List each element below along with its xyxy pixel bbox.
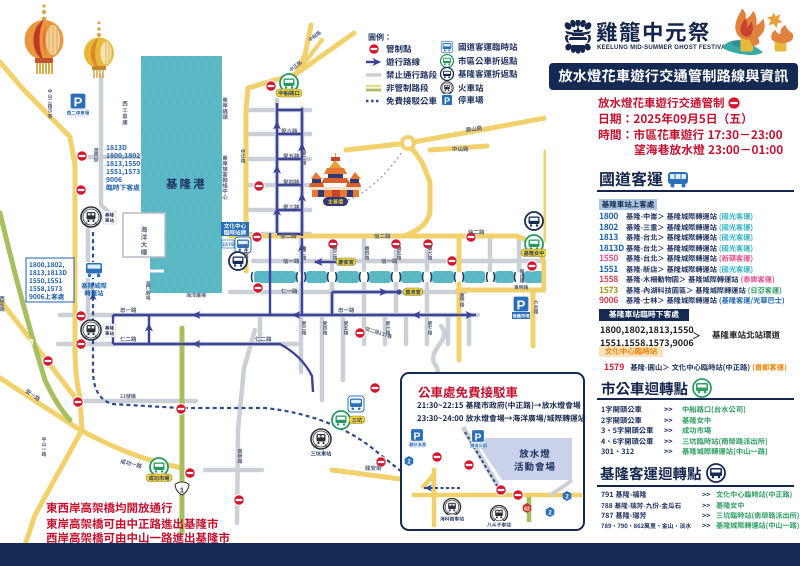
svg-text:義五路: 義五路 <box>396 245 403 261</box>
svg-text:西三倉庫: 西三倉庫 <box>121 100 129 126</box>
svg-text:東西岸高架橋均開放通行: 東西岸高架橋均開放通行 <box>46 500 173 516</box>
svg-text:港西街: 港西街 <box>93 147 100 163</box>
svg-text:東岸碼頭: 東岸碼頭 <box>221 97 229 120</box>
svg-text:東明路: 東明路 <box>514 284 529 291</box>
svg-text:仁二路: 仁二路 <box>120 335 137 343</box>
svg-text:奠濟宮: 奠濟宮 <box>405 289 421 296</box>
svg-text:中山路: 中山路 <box>452 145 469 153</box>
svg-text:放水燈: 放水燈 <box>519 446 551 460</box>
svg-text:臨時下客處: 臨時下客處 <box>106 182 140 192</box>
svg-text:東明路: 東明路 <box>459 292 466 308</box>
svg-text:62: 62 <box>524 507 530 513</box>
svg-text:東岸旅客聯絡中心: 東岸旅客聯絡中心 <box>221 155 229 200</box>
svg-text:信一路: 信一路 <box>283 257 300 265</box>
svg-text:停車場: 停車場 <box>458 94 484 106</box>
svg-text:義六路: 義六路 <box>427 245 434 261</box>
svg-text:義四路: 義四路 <box>364 245 371 261</box>
svg-text:海洋大樓: 海洋大樓 <box>139 226 149 256</box>
svg-text:信義市場: 信義市場 <box>512 314 530 320</box>
svg-text:西定路: 西定路 <box>0 295 6 312</box>
svg-text:南榮路: 南榮路 <box>237 448 244 464</box>
svg-text:西二停車場: 西二停車場 <box>67 111 90 117</box>
svg-text:義二路: 義二路 <box>301 245 308 261</box>
svg-text:基隆客運折返點: 基隆客運折返點 <box>458 68 518 80</box>
svg-text:免費接駁公車: 免費接駁公車 <box>386 95 438 107</box>
svg-text:管制點: 管制點 <box>386 43 412 55</box>
svg-text:臨時站牌: 臨時站牌 <box>224 229 247 237</box>
svg-text:市區公車折返點: 市區公車折返點 <box>458 55 518 67</box>
svg-text:中正路: 中正路 <box>240 148 247 164</box>
svg-text:愛五路: 愛五路 <box>343 320 350 336</box>
svg-text:海科館車站: 海科館車站 <box>440 515 464 522</box>
svg-text:仁一路: 仁一路 <box>281 287 298 295</box>
svg-text:中船路口: 中船路口 <box>278 89 300 97</box>
svg-text:八斗子車站: 八斗子車站 <box>487 521 511 528</box>
svg-text:仁二路: 仁二路 <box>255 335 272 343</box>
svg-text:三坑: 三坑 <box>352 417 363 424</box>
svg-text:碧砂漁港: 碧砂漁港 <box>409 442 427 448</box>
svg-text:國道客運臨時站: 國道客運臨時站 <box>458 41 518 53</box>
svg-text:愛六路: 愛六路 <box>281 127 298 135</box>
svg-text:成功市場: 成功市場 <box>149 475 171 482</box>
svg-text:六合路: 六合路 <box>533 299 540 315</box>
svg-text:主普壇: 主普壇 <box>328 199 344 206</box>
svg-text:基隆女中: 基隆女中 <box>524 250 545 257</box>
svg-text:慶安宮: 慶安宮 <box>338 259 354 266</box>
svg-text:信二路: 信二路 <box>374 232 391 240</box>
svg-text:忠一路: 忠一路 <box>120 306 137 314</box>
svg-text:9006上客處: 9006上客處 <box>29 291 65 301</box>
svg-text:忠一路: 忠一路 <box>338 306 355 314</box>
svg-text:潮境公園: 潮境公園 <box>470 443 487 449</box>
svg-text:基隆港: 基隆港 <box>166 176 207 192</box>
svg-text:非管制路段: 非管制路段 <box>386 82 429 94</box>
svg-text:信二路: 信二路 <box>468 228 485 236</box>
svg-text:遊行路線: 遊行路線 <box>386 56 421 68</box>
svg-text:龍安街: 龍安街 <box>365 464 382 472</box>
svg-text:車站: 車站 <box>105 218 115 224</box>
svg-text:愛三路: 愛三路 <box>283 203 300 211</box>
svg-text:三坑車站: 三坑車站 <box>311 451 333 458</box>
svg-text:中山二路35巷: 中山二路35巷 <box>47 88 54 119</box>
svg-text:東信路: 東信路 <box>519 268 526 284</box>
svg-text:愛五路: 愛五路 <box>283 152 300 160</box>
svg-text:轉運站: 轉運站 <box>84 289 104 298</box>
svg-text:火車站: 火車站 <box>458 82 484 94</box>
svg-text:信二路: 信二路 <box>280 232 297 240</box>
svg-text:活動會場: 活動會場 <box>514 459 556 473</box>
svg-text:圖例：: 圖例： <box>368 32 392 43</box>
svg-text:21號橋: 21號橋 <box>120 393 136 400</box>
svg-text:海門廣場: 海門廣場 <box>145 280 152 301</box>
svg-text:車站: 車站 <box>105 331 115 337</box>
svg-text:愛七路: 愛七路 <box>427 320 434 336</box>
svg-text:西岸高架橋: 西岸高架橋 <box>22 337 36 365</box>
svg-text:愛二路: 愛二路 <box>301 150 308 166</box>
svg-text:禁止通行路段: 禁止通行路段 <box>386 69 438 81</box>
svg-text:愛四路: 愛四路 <box>283 178 300 186</box>
svg-text:1: 1 <box>180 488 184 495</box>
svg-text:愛四路: 愛四路 <box>322 320 329 336</box>
svg-text:愛三路: 愛三路 <box>301 320 308 336</box>
svg-text:中山一路: 中山一路 <box>41 436 48 457</box>
svg-text:1579: 1579 <box>222 241 233 248</box>
svg-text:中正路: 中正路 <box>243 243 250 259</box>
svg-text:海洋廣場: 海洋廣場 <box>186 292 206 299</box>
